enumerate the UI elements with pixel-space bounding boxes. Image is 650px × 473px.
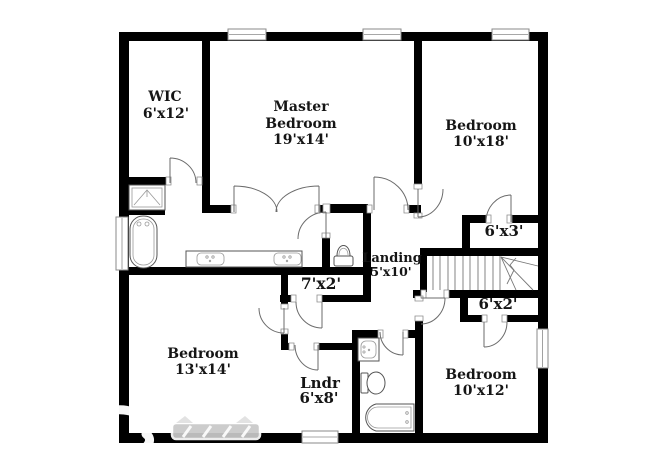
room-label-bedroom-upper-right: Bedroom [445, 118, 517, 134]
room-dims-closet-upper: 6'x3' [484, 222, 523, 240]
room-dims-master: 19'x14' [273, 132, 329, 148]
window-right-bedroom [537, 329, 548, 368]
window-top-bedroom [492, 29, 529, 40]
room-dims-wic: 6'x12' [143, 106, 189, 122]
room-dims-laundry: 6'x8' [299, 389, 338, 407]
window-top-master-right [363, 29, 401, 40]
room-label-wic: WIC [147, 89, 181, 105]
room-label-master-line1: Master [273, 99, 329, 115]
window-left-bath [116, 217, 128, 270]
room-dims-bedroom-lower-left: 13'x14' [175, 362, 231, 378]
room-dims-closet-hall: 7'x2' [301, 274, 341, 293]
window-top-master-left [228, 29, 266, 40]
room-label-bedroom-lower-right: Bedroom [445, 367, 517, 383]
floor-plan: WIC 6'x12' Master Bedroom 19'x14' Bedroo… [0, 0, 650, 473]
room-dims-bedroom-lower-right: 10'x12' [453, 383, 509, 399]
master-bathtub-icon [130, 216, 157, 268]
hall-bath-vanity [358, 338, 379, 361]
shower-icon [129, 185, 165, 210]
hall-toilet-icon [361, 372, 385, 394]
window-bottom-laundry [302, 431, 338, 443]
master-double-vanity [186, 251, 302, 267]
room-dims-landing: 5'x10' [370, 264, 411, 279]
hall-bathtub-icon [366, 404, 414, 431]
room-label-master-line2: Bedroom [265, 116, 337, 132]
floor-plan-canvas: WIC 6'x12' Master Bedroom 19'x14' Bedroo… [0, 0, 650, 473]
room-dims-bedroom-upper-right: 10'x18' [453, 134, 509, 150]
room-dims-closet-lower: 6'x2' [478, 295, 517, 313]
room-label-bedroom-lower-left: Bedroom [167, 346, 239, 362]
